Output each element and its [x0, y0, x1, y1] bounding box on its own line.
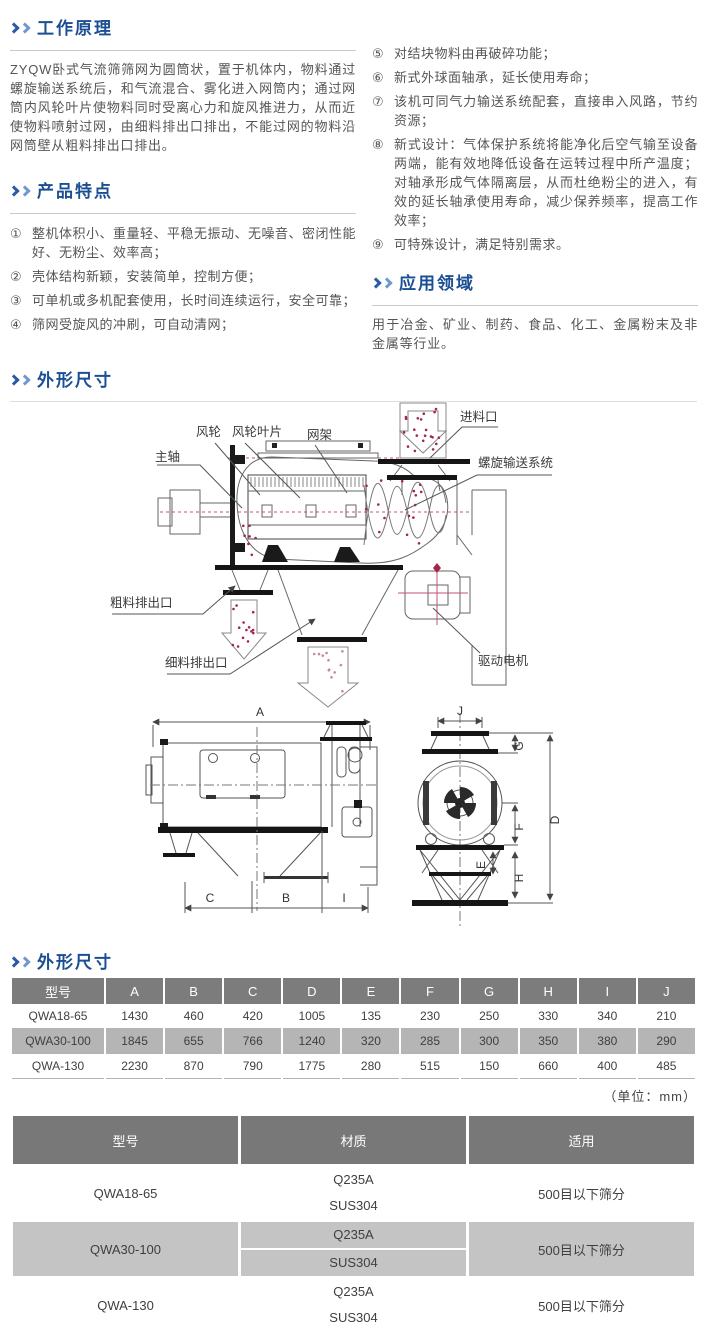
material-option: SUS304	[241, 1250, 466, 1276]
material-option: SUS304	[241, 1305, 466, 1331]
double-chevron-icon	[10, 187, 29, 195]
cell: 150	[461, 1054, 518, 1079]
right-column: ⑤对结块物料由再破碎功能； ⑥新式外球面轴承，延长使用寿命； ⑦该机可同气力输送…	[372, 44, 698, 353]
cell-material: Q235A SUS304	[241, 1222, 466, 1276]
table-row: QWA-130 Q235A SUS304 500目以下筛分	[13, 1278, 694, 1332]
cell: 870	[165, 1054, 222, 1079]
double-chevron-icon	[372, 279, 391, 287]
cell: 400	[579, 1054, 636, 1079]
cell-application: 500目以下筛分	[469, 1166, 694, 1220]
feature-item: ③可单机或多机配套使用，长时间连续运行，安全可靠；	[10, 291, 356, 310]
cell: 320	[342, 1029, 399, 1054]
cell-application: 500目以下筛分	[469, 1222, 694, 1276]
double-chevron-icon	[10, 376, 29, 384]
cell: 290	[638, 1029, 695, 1054]
coarse-particles	[232, 604, 255, 648]
cell: 766	[224, 1029, 281, 1054]
col-header-model: 型号	[13, 1116, 238, 1164]
cell: 1005	[283, 1004, 340, 1029]
feature-item: ①整机体积小、重量轻、平稳无振动、无噪音、密闭性能好、无粉尘、效率高；	[10, 224, 356, 262]
material-option: Q235A	[241, 1222, 466, 1250]
cell: 280	[342, 1054, 399, 1079]
cell: 420	[224, 1004, 281, 1029]
label-screw-system: 螺旋输送系统	[478, 455, 553, 470]
col-header: F	[401, 978, 458, 1004]
cell: 210	[638, 1004, 695, 1029]
cell-material: Q235A SUS304	[241, 1278, 466, 1332]
mesh-hatch	[251, 477, 363, 487]
fan-hub-blades	[444, 787, 476, 819]
cell: 285	[401, 1029, 458, 1054]
table-row: QWA-130 2230 870 790 1775 280 515 150 66…	[12, 1054, 695, 1079]
dim-label-B: B	[282, 891, 290, 905]
side-view-drawing	[146, 721, 378, 913]
label-feed-inlet: 进料口	[460, 410, 498, 424]
fine-particles	[313, 650, 344, 693]
section-title: 外形尺寸	[37, 366, 113, 391]
material-table: 型号 材质 适用 QWA18-65 Q235A SUS304 500目以下筛分 …	[10, 1114, 697, 1334]
label-coarse-outlet: 粗料排出口	[110, 596, 173, 610]
cell: 790	[224, 1054, 281, 1079]
cell-model: QWA18-65	[12, 1004, 104, 1029]
drive-motor-shape	[398, 563, 470, 625]
double-chevron-icon	[10, 958, 29, 966]
label-fan-blade: 风轮叶片	[232, 425, 282, 439]
feature-item: ⑤对结块物料由再破碎功能；	[372, 44, 698, 63]
front-view-drawing	[412, 713, 553, 927]
cell-model: QWA30-100	[12, 1029, 104, 1054]
cell: 1775	[283, 1054, 340, 1079]
cell: 460	[165, 1004, 222, 1029]
feature-list-left: ①整机体积小、重量轻、平稳无振动、无噪音、密闭性能好、无粉尘、效率高； ②壳体结…	[10, 224, 356, 334]
col-header: A	[106, 978, 163, 1004]
cell-model: QWA-130	[13, 1278, 238, 1332]
cell: 515	[401, 1054, 458, 1079]
cell: 655	[165, 1029, 222, 1054]
col-header: C	[224, 978, 281, 1004]
cell: 1240	[283, 1029, 340, 1054]
machine-labels: 风轮 风轮叶片 网架 主轴 进料口 螺旋输送系统 粗料排出口 细料排出口 驱动电…	[110, 410, 553, 670]
col-header: H	[520, 978, 577, 1004]
label-main-shaft: 主轴	[155, 449, 180, 464]
cell: 230	[401, 1004, 458, 1029]
col-header: D	[283, 978, 340, 1004]
cell-model: QWA18-65	[13, 1166, 238, 1220]
col-header: J	[638, 978, 695, 1004]
label-drive-motor: 驱动电机	[478, 654, 529, 668]
feature-item: ⑧新式设计：气体保护系统将能净化后空气输至设备两端，能有效地降低设备在运转过程中…	[372, 135, 698, 230]
section-header-working-principle: 工作原理	[10, 14, 356, 51]
material-option: Q235A	[241, 1279, 466, 1305]
section-header-features: 产品特点	[10, 177, 356, 214]
feature-item: ⑨可特殊设计，满足特别需求。	[372, 235, 698, 254]
cell: 330	[520, 1004, 577, 1029]
dim-label-E: E	[474, 861, 488, 869]
dimensions-table: 型号 A B C D E F G H I J QWA18-65 1430 460…	[10, 978, 697, 1079]
label-fine-outlet: 细料排出口	[165, 656, 228, 670]
material-option: Q235A	[241, 1167, 466, 1193]
feature-list-right: ⑤对结块物料由再破碎功能； ⑥新式外球面轴承，延长使用寿命； ⑦该机可同气力输送…	[372, 44, 698, 254]
cell: 2230	[106, 1054, 163, 1079]
cell: 135	[342, 1004, 399, 1029]
section-title: 应用领域	[399, 269, 475, 294]
cell: 1845	[106, 1029, 163, 1054]
col-header: I	[579, 978, 636, 1004]
application-text: 用于冶金、矿业、制药、食品、化工、金属粉末及非金属等行业。	[372, 315, 698, 353]
cell: 1430	[106, 1004, 163, 1029]
table-row: QWA30-100 Q235A SUS304 500目以下筛分	[13, 1222, 694, 1276]
table-row: QWA18-65 1430 460 420 1005 135 230 250 3…	[12, 1004, 695, 1029]
dim-label-D: D	[548, 815, 562, 824]
feature-item: ⑦该机可同气力输送系统配套，直接串入风路，节约资源；	[372, 92, 698, 130]
section-title: 工作原理	[37, 14, 113, 39]
cell-material: Q235A SUS304	[241, 1166, 466, 1220]
dim-label-J: J	[457, 704, 463, 718]
cell-model: QWA-130	[12, 1054, 104, 1079]
dim-label-F: F	[512, 823, 526, 830]
section-header-application: 应用领域	[372, 269, 698, 306]
col-header: B	[165, 978, 222, 1004]
label-fan-wheel: 风轮	[196, 425, 221, 439]
section-title: 外形尺寸	[37, 948, 113, 973]
cell: 300	[461, 1029, 518, 1054]
feature-item: ②壳体结构新颖，安装简单，控制方便；	[10, 267, 356, 286]
dim-label-C: C	[206, 891, 215, 905]
cell: 250	[461, 1004, 518, 1029]
cell: 660	[520, 1054, 577, 1079]
section-header-outline-2: 外形尺寸	[10, 948, 113, 973]
cell: 340	[579, 1004, 636, 1029]
feature-item: ④筛网受旋风的冲刷，可自动清网；	[10, 315, 356, 334]
left-column: 工作原理 ZYQW卧式气流筛筛网为圆筒状，置于机体内，物料通过螺旋输送系统后，和…	[10, 14, 356, 339]
section-title: 产品特点	[37, 177, 113, 202]
table-row: QWA30-100 1845 655 766 1240 320 285 300 …	[12, 1029, 695, 1054]
cell: 380	[579, 1029, 636, 1054]
col-header-material: 材质	[241, 1116, 466, 1164]
cell: 350	[520, 1029, 577, 1054]
double-chevron-icon	[10, 24, 29, 32]
screw-spiral	[364, 482, 446, 545]
label-net-frame: 网架	[307, 428, 332, 442]
table-header-row: 型号 A B C D E F G H I J	[12, 978, 695, 1004]
technical-diagrams: 风轮 风轮叶片 网架 主轴 进料口 螺旋输送系统 粗料排出口 细料排出口 驱动电…	[10, 395, 697, 935]
machine-diagram-svg: 风轮 风轮叶片 网架 主轴 进料口 螺旋输送系统 粗料排出口 细料排出口 驱动电…	[10, 395, 697, 935]
dim-label-G: G	[512, 741, 526, 750]
product-spec-page: 工作原理 ZYQW卧式气流筛筛网为圆筒状，置于机体内，物料通过螺旋输送系统后，和…	[0, 0, 707, 1335]
col-header: E	[342, 978, 399, 1004]
working-principle-text: ZYQW卧式气流筛筛网为圆筒状，置于机体内，物料通过螺旋输送系统后，和气流混合、…	[10, 60, 356, 155]
feature-item: ⑥新式外球面轴承，延长使用寿命；	[372, 68, 698, 87]
col-header-application: 适用	[469, 1116, 694, 1164]
cell-model: QWA30-100	[13, 1222, 238, 1276]
dim-label-A: A	[256, 705, 264, 719]
material-option: SUS304	[241, 1193, 466, 1219]
cell: 485	[638, 1054, 695, 1079]
cell-application: 500目以下筛分	[469, 1278, 694, 1332]
dim-label-I: I	[342, 891, 345, 905]
table-header-row: 型号 材质 适用	[13, 1116, 694, 1164]
col-header-model: 型号	[12, 978, 104, 1004]
table-row: QWA18-65 Q235A SUS304 500目以下筛分	[13, 1166, 694, 1220]
dim-label-H: H	[512, 874, 526, 883]
unit-note: （单位：mm）	[10, 1086, 697, 1105]
col-header: G	[461, 978, 518, 1004]
